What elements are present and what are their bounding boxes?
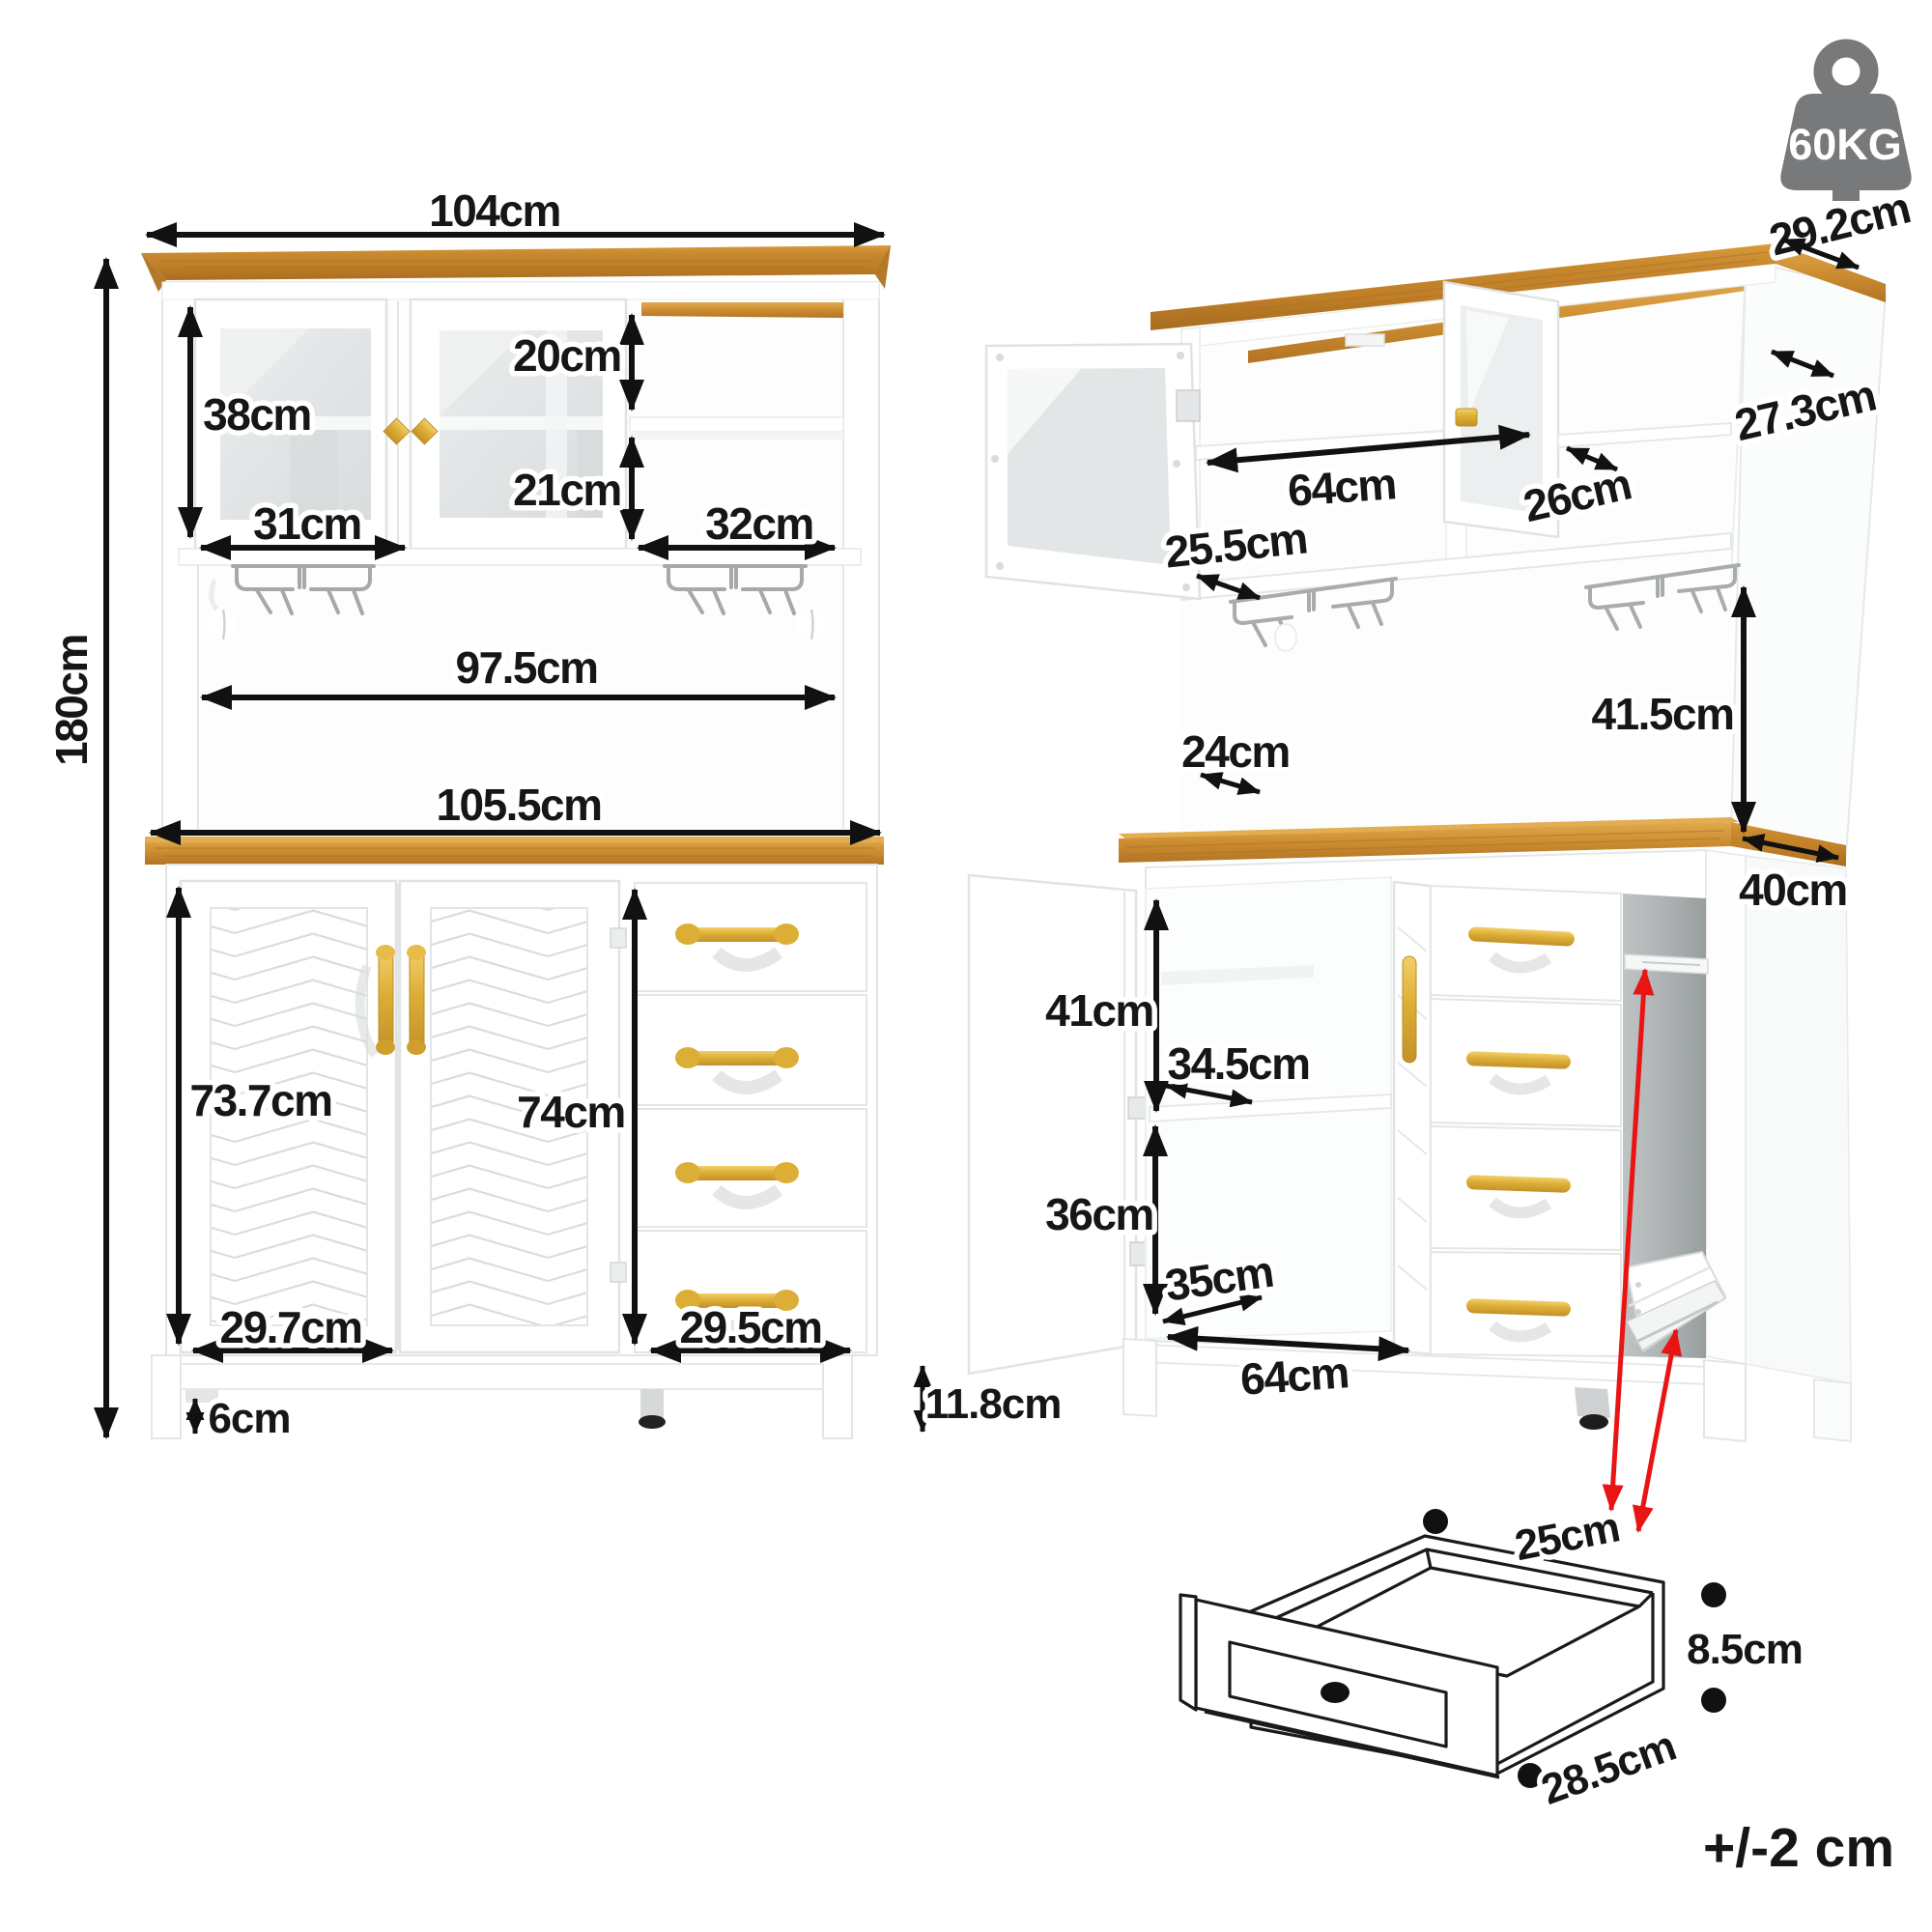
svg-text:8.5cm: 8.5cm [1687, 1626, 1803, 1673]
svg-text:6cm: 6cm [208, 1395, 290, 1442]
svg-text:34.5cm: 34.5cm [1167, 1038, 1309, 1089]
svg-text:32cm: 32cm [705, 498, 813, 549]
svg-text:64cm: 64cm [1238, 1347, 1350, 1405]
svg-text:97.5cm: 97.5cm [455, 642, 597, 693]
svg-text:11.8cm: 11.8cm [925, 1380, 1062, 1428]
svg-text:60KG: 60KG [1788, 120, 1902, 169]
svg-text:74cm: 74cm [517, 1087, 625, 1137]
svg-text:64cm: 64cm [1286, 458, 1397, 516]
svg-text:73.7cm: 73.7cm [189, 1075, 331, 1125]
svg-text:29.7cm: 29.7cm [219, 1302, 361, 1352]
svg-text:180cm: 180cm [46, 635, 97, 766]
svg-text:+/-2 cm: +/-2 cm [1703, 1817, 1894, 1879]
svg-text:105.5cm: 105.5cm [436, 780, 601, 830]
svg-text:21cm: 21cm [513, 465, 621, 515]
svg-text:24cm: 24cm [1181, 726, 1290, 777]
svg-text:20cm: 20cm [513, 330, 621, 381]
svg-text:31cm: 31cm [253, 498, 361, 549]
svg-text:104cm: 104cm [429, 185, 560, 236]
svg-text:40cm: 40cm [1739, 865, 1847, 915]
svg-text:29.5cm: 29.5cm [679, 1302, 821, 1352]
svg-text:41.5cm: 41.5cm [1591, 689, 1733, 739]
svg-text:36cm: 36cm [1045, 1189, 1153, 1239]
svg-text:41cm: 41cm [1045, 985, 1153, 1036]
svg-text:38cm: 38cm [203, 389, 311, 440]
